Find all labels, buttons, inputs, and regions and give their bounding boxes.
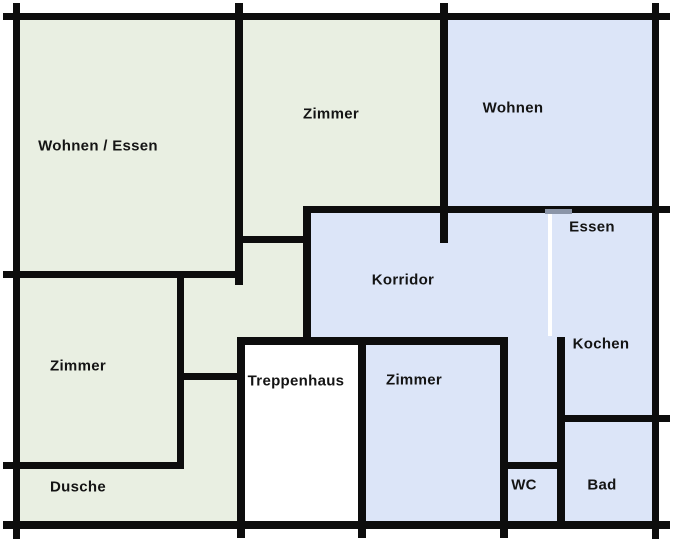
wall-wc-top bbox=[502, 462, 565, 469]
wall-vestibule-top bbox=[235, 236, 311, 243]
wall-treppenhaus-right bbox=[358, 340, 366, 538]
room-label-zimmer-top: Zimmer bbox=[303, 106, 359, 123]
wall-zimmer-left-right bbox=[177, 271, 184, 469]
wall-kochen-left bbox=[557, 337, 565, 529]
room-label-dusche: Dusche bbox=[50, 479, 106, 496]
wall-zimmer-bottom-right bbox=[500, 340, 508, 538]
wall-outer-bottom bbox=[3, 521, 670, 529]
wall-wohnen-essen-bottom bbox=[3, 271, 243, 278]
room-region-0 bbox=[16, 16, 311, 345]
room-region-6 bbox=[508, 345, 656, 525]
wall-outer-right bbox=[652, 3, 659, 539]
room-label-korridor: Korridor bbox=[372, 272, 434, 289]
room-region-7 bbox=[245, 345, 358, 521]
room-label-wohnen-essen: Wohnen / Essen bbox=[38, 138, 158, 155]
floorplan: Wohnen / EssenZimmerWohnenEssenKorridorK… bbox=[0, 0, 676, 543]
room-label-treppenhaus: Treppenhaus bbox=[248, 373, 345, 390]
wall-korridor-top bbox=[303, 206, 670, 213]
wall-dusche-top bbox=[3, 462, 184, 469]
room-label-wc: WC bbox=[511, 477, 537, 494]
room-label-essen: Essen bbox=[569, 219, 615, 236]
room-label-zimmer-bottom: Zimmer bbox=[386, 372, 442, 389]
room-label-zimmer-left: Zimmer bbox=[50, 358, 106, 375]
wall-korridor-left bbox=[303, 206, 311, 345]
room-label-wohnen: Wohnen bbox=[483, 100, 544, 117]
wall-treppenhaus-left bbox=[237, 340, 245, 538]
wall-hall-stub bbox=[177, 373, 245, 380]
wall-korridor-bottom bbox=[237, 337, 508, 345]
room-region-3 bbox=[448, 16, 656, 206]
wall-outer-top bbox=[3, 13, 670, 20]
room-label-kochen: Kochen bbox=[573, 336, 630, 353]
wall-bad-top bbox=[562, 415, 670, 422]
essen-korridor-opening bbox=[548, 214, 552, 336]
room-label-bad: Bad bbox=[587, 477, 616, 494]
